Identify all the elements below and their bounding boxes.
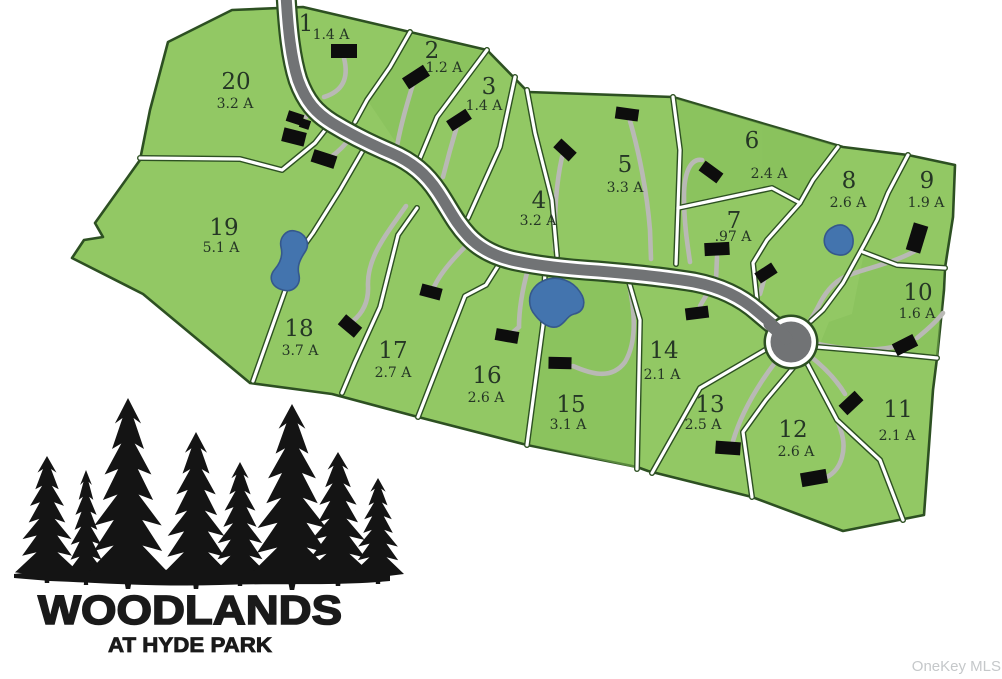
tree-icon bbox=[15, 456, 79, 583]
logo-tagline: AT HYDE PARK bbox=[108, 634, 272, 657]
lot-number: 20 bbox=[221, 69, 250, 95]
lot-number: 14 bbox=[649, 338, 678, 364]
lot-acreage: 2.1 A bbox=[879, 428, 917, 444]
lot-acreage: 1.9 A bbox=[908, 195, 946, 211]
plat-map-image: 11.4 A21.2 A31.4 A43.2 A53.3 A62.4 A7.97… bbox=[0, 0, 1002, 679]
lot-acreage: 3.2 A bbox=[520, 213, 558, 229]
lot-number: 10 bbox=[903, 280, 932, 306]
lot-acreage: 1.4 A bbox=[313, 27, 351, 43]
lot-number: 9 bbox=[920, 168, 935, 194]
lot-number: 3 bbox=[482, 74, 497, 100]
lot-number: 15 bbox=[556, 392, 585, 418]
lot-label-11: 112.1 A bbox=[879, 397, 917, 444]
lot-acreage: 2.6 A bbox=[830, 195, 868, 211]
lot-number: 8 bbox=[842, 168, 857, 194]
lot-acreage: 1.6 A bbox=[899, 306, 937, 322]
lot-number: 11 bbox=[883, 397, 912, 423]
tree-icon bbox=[84, 398, 172, 589]
lot-number: 1 bbox=[299, 11, 314, 37]
lot-acreage: 2.1 A bbox=[644, 367, 682, 383]
lot-acreage: .97 A bbox=[715, 229, 753, 245]
lot-number: 17 bbox=[378, 338, 407, 364]
lot-label-14: 142.1 A bbox=[644, 338, 682, 383]
logo-ground bbox=[14, 570, 390, 586]
lot-acreage: 2.5 A bbox=[685, 417, 723, 433]
lot-number: 6 bbox=[745, 128, 760, 154]
driveway bbox=[716, 257, 717, 280]
lot-acreage: 1.2 A bbox=[426, 60, 464, 76]
lot-acreage: 2.6 A bbox=[778, 444, 816, 460]
lot-number: 5 bbox=[618, 152, 633, 178]
lot-acreage: 3.3 A bbox=[607, 180, 645, 196]
lot-label-16: 162.6 A bbox=[468, 363, 506, 406]
lot-number: 19 bbox=[209, 215, 238, 241]
house-icon bbox=[548, 357, 571, 369]
lot-number: 16 bbox=[472, 363, 501, 389]
house-icon bbox=[715, 441, 741, 456]
lot-acreage: 2.4 A bbox=[751, 166, 789, 182]
lot-number: 13 bbox=[695, 392, 724, 418]
lot-number: 4 bbox=[532, 188, 547, 214]
lot-acreage: 3.2 A bbox=[217, 96, 255, 112]
tree-icon bbox=[352, 478, 404, 584]
lot-acreage: 5.1 A bbox=[203, 240, 241, 256]
logo-title: WOODLANDS bbox=[38, 587, 342, 633]
lot-label-10: 101.6 A bbox=[899, 280, 937, 322]
lot-label-20: 203.2 A bbox=[217, 69, 255, 112]
lot-label-17: 172.7 A bbox=[375, 338, 413, 381]
lot-acreage: 2.7 A bbox=[375, 365, 413, 381]
lot-acreage: 3.7 A bbox=[282, 343, 320, 359]
lot-acreage: 2.6 A bbox=[468, 390, 506, 406]
lot-acreage: 1.4 A bbox=[466, 98, 504, 114]
logo-trees bbox=[15, 398, 404, 590]
cul-de-sac bbox=[764, 315, 819, 370]
house-icon bbox=[331, 44, 357, 58]
lot-number: 18 bbox=[284, 316, 313, 342]
watermark: OneKey MLS bbox=[912, 658, 1001, 675]
pond bbox=[824, 225, 853, 255]
lot-number: 12 bbox=[778, 417, 807, 443]
lot-acreage: 3.1 A bbox=[550, 417, 588, 433]
